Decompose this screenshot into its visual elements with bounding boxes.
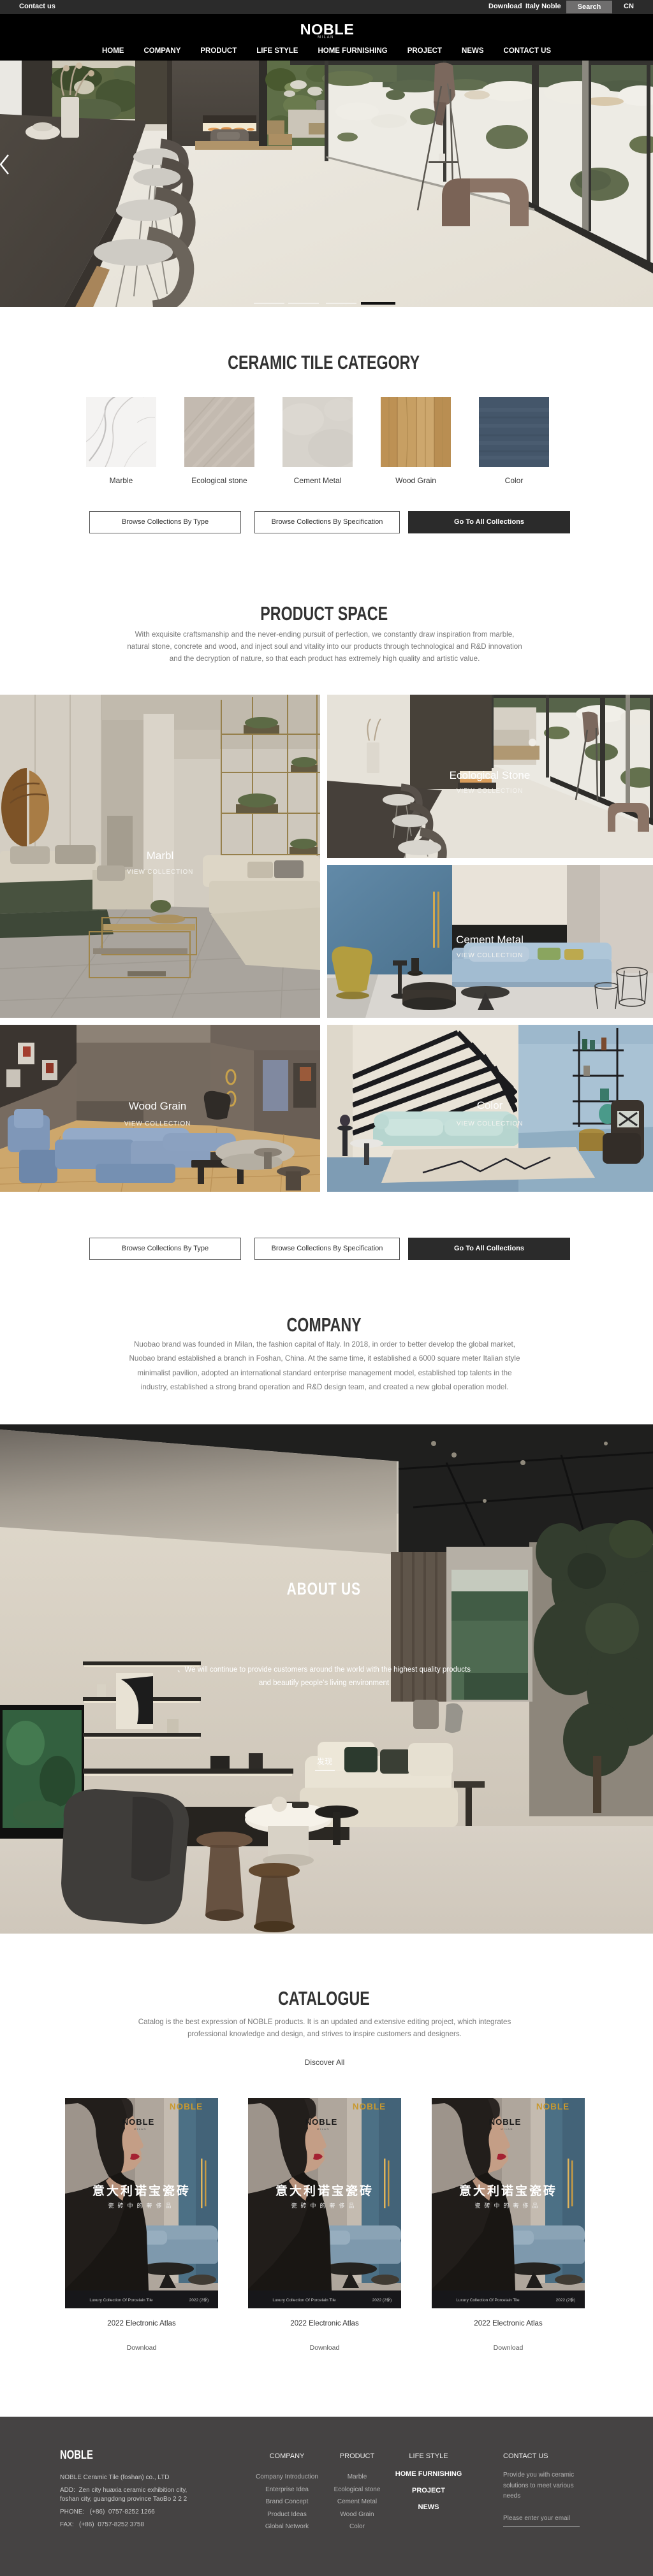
svg-text:Ecological Stone: Ecological Stone [450, 769, 531, 781]
svg-text:Marbl: Marbl [147, 850, 174, 862]
svg-text:发现: 发现 [317, 1756, 332, 1766]
svg-text:and beautify people's living e: and beautify people's living environment [259, 1679, 390, 1687]
svg-text:Color: Color [477, 1099, 503, 1111]
svg-text:VIEW COLLECTION: VIEW COLLECTION [457, 1120, 523, 1127]
svg-text:Wood Grain: Wood Grain [129, 1100, 186, 1112]
svg-text:VIEW COLLECTION: VIEW COLLECTION [127, 869, 193, 876]
svg-text:VIEW COLLECTION: VIEW COLLECTION [457, 952, 523, 959]
svg-text:VIEW COLLECTION: VIEW COLLECTION [457, 788, 523, 795]
svg-text:VIEW COLLECTION: VIEW COLLECTION [124, 1120, 191, 1127]
svg-text:ABOUT US: ABOUT US [287, 1580, 361, 1599]
svg-text:Cement Metal: Cement Metal [456, 934, 524, 946]
svg-text:、We will continue to provide c: 、We will continue to provide customers a… [177, 1666, 471, 1674]
